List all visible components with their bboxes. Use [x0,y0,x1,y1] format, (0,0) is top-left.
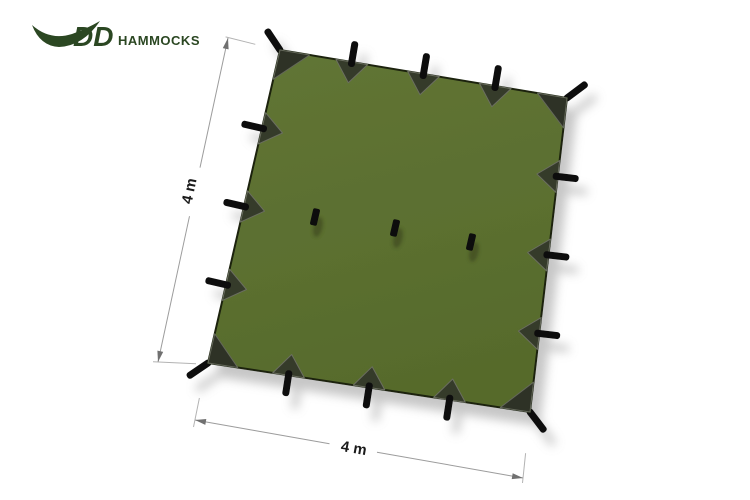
width-dimension-label: 4 m [340,438,368,459]
dimension-arrow [157,351,163,362]
tarp-canopy [208,50,567,412]
dimension-line [195,420,330,444]
tarp-group [185,27,589,434]
dimension-arrow [195,419,206,425]
dimension-line [158,216,190,362]
logo-brand-text: DD [73,21,113,52]
height-dimension-label: 4 m [179,177,201,206]
extension-tick [153,362,196,364]
extension-tick [226,37,256,44]
dimension-arrow [512,473,523,479]
dimension-arrow [223,38,229,49]
diagram-svg: DD HAMMOCKS [0,0,750,500]
logo-name-text: HAMMOCKS [118,33,200,48]
extension-tick [523,453,526,483]
dimension-line [377,452,523,478]
dimension-width: 4 m [194,398,526,483]
tarp-product-diagram: DD HAMMOCKS [0,0,750,500]
dimension-line [200,38,228,168]
extension-tick [194,398,200,427]
brand-logo: DD HAMMOCKS [32,21,200,52]
